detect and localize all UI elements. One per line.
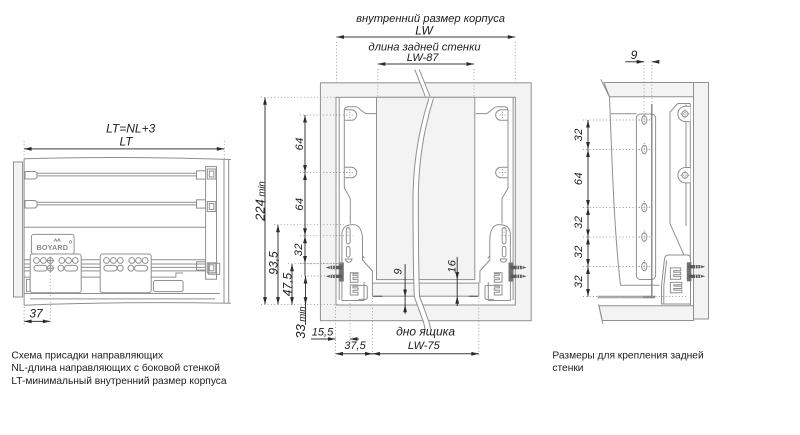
svg-text:LW-75: LW-75	[408, 340, 441, 352]
svg-text:64: 64	[294, 197, 306, 210]
svg-text:LT=NL+3: LT=NL+3	[106, 122, 155, 136]
svg-text:Размеры для крепления задней: Размеры для крепления задней	[552, 351, 703, 362]
svg-text:дно ящика: дно ящика	[396, 325, 455, 339]
svg-text:BOYARD: BOYARD	[36, 243, 68, 252]
svg-text:9: 9	[393, 268, 405, 275]
svg-text:стенки: стенки	[552, 363, 583, 374]
svg-text:LT-минимальный внутренний разм: LT-минимальный внутренний размер корпуса	[11, 376, 227, 387]
svg-text:32: 32	[573, 128, 585, 141]
svg-text:32: 32	[573, 245, 585, 258]
svg-text:Схема присадки направляющих: Схема присадки направляющих	[11, 351, 163, 362]
svg-text:64: 64	[573, 172, 585, 185]
svg-text:NL-длина направляющих с боково: NL-длина направляющих с боковой стенкой	[11, 362, 220, 374]
svg-text:LW: LW	[415, 24, 434, 38]
svg-text:37: 37	[29, 307, 44, 321]
svg-text:37,5: 37,5	[344, 340, 366, 352]
svg-text:LT: LT	[119, 134, 134, 148]
svg-text:32: 32	[573, 275, 585, 288]
svg-text:15,5: 15,5	[312, 327, 334, 339]
svg-text:LW-87: LW-87	[407, 52, 440, 64]
svg-text:32: 32	[293, 243, 305, 256]
svg-text:64: 64	[294, 137, 306, 150]
svg-text:32: 32	[573, 216, 585, 229]
